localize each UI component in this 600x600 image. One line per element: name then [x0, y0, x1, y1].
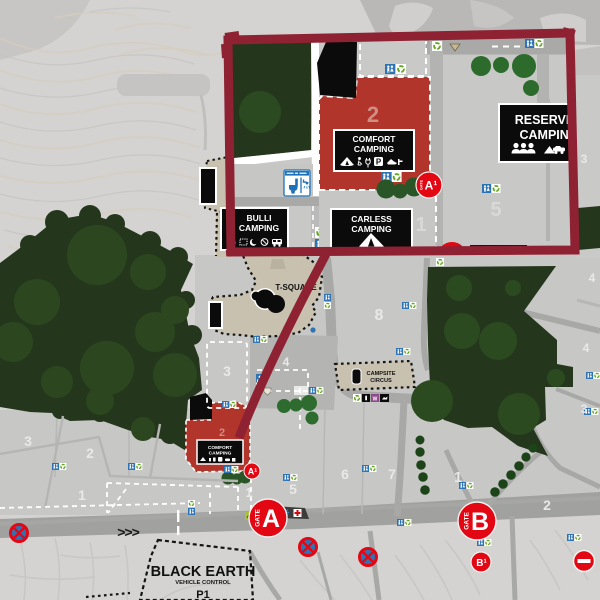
svg-text:A¹: A¹: [425, 179, 438, 193]
svg-text:6: 6: [341, 466, 349, 482]
svg-text:CAMPING: CAMPING: [351, 224, 392, 234]
svg-text:GATE: GATE: [255, 509, 262, 527]
svg-text:B¹: B¹: [476, 558, 487, 569]
svg-text:GATE: GATE: [420, 179, 424, 190]
svg-text:2: 2: [86, 445, 94, 461]
svg-text:P: P: [376, 158, 382, 167]
svg-text:>>>: >>>: [117, 524, 139, 540]
svg-text:3: 3: [223, 363, 231, 379]
svg-text:1: 1: [454, 469, 462, 486]
svg-text:7: 7: [388, 466, 396, 482]
svg-text:3: 3: [24, 433, 32, 449]
svg-text:CAMPING: CAMPING: [209, 451, 232, 457]
svg-text:4: 4: [583, 341, 590, 355]
svg-text:3: 3: [581, 402, 588, 416]
svg-text:CIRCUS: CIRCUS: [370, 378, 392, 384]
svg-text:B: B: [471, 508, 489, 536]
svg-text:GATE: GATE: [464, 512, 471, 530]
svg-text:BLACK EARTH: BLACK EARTH: [151, 564, 256, 580]
svg-text:4: 4: [283, 355, 290, 369]
svg-text:CAMPING: CAMPING: [354, 144, 395, 154]
svg-text:COMFORT: COMFORT: [208, 445, 232, 451]
svg-text:CAMPING: CAMPING: [239, 223, 280, 233]
svg-text:BULLI: BULLI: [246, 213, 271, 223]
svg-text:1: 1: [78, 487, 86, 503]
svg-text:A¹: A¹: [248, 467, 258, 477]
svg-text:CARLESS: CARLESS: [351, 214, 392, 224]
svg-text:8: 8: [375, 307, 384, 324]
svg-text:CAMPSITE: CAMPSITE: [367, 371, 396, 377]
svg-text:3: 3: [581, 152, 588, 166]
svg-text:A: A: [262, 505, 280, 533]
svg-text:P1: P1: [196, 589, 209, 600]
svg-text:1: 1: [415, 214, 426, 236]
svg-text:COMFORT: COMFORT: [353, 134, 397, 144]
svg-text:2: 2: [543, 497, 551, 513]
svg-text:2: 2: [367, 102, 379, 127]
svg-text:VEHICLE CONTROL: VEHICLE CONTROL: [175, 580, 231, 586]
svg-text:4: 4: [589, 271, 596, 285]
svg-text:1: 1: [245, 485, 252, 500]
svg-text:2: 2: [219, 427, 225, 439]
svg-text:5: 5: [289, 481, 297, 497]
svg-text:W: W: [373, 397, 378, 403]
svg-text:5: 5: [490, 199, 501, 221]
